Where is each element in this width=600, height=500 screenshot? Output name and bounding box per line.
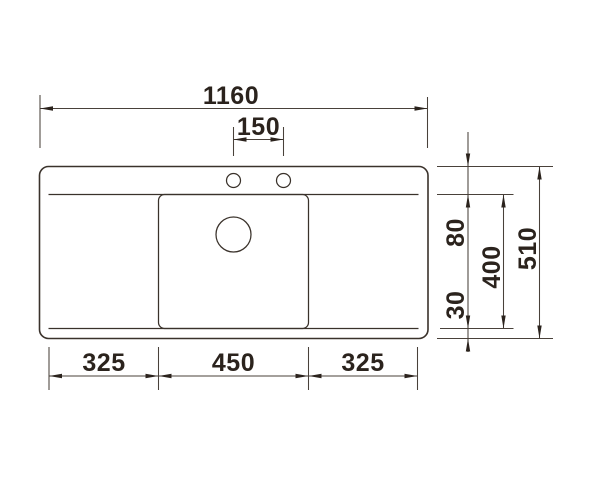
arrowhead-down (466, 154, 470, 167)
sink-bowl (159, 195, 309, 329)
dimension-label: 510 (514, 227, 542, 270)
drain-hole (216, 217, 251, 252)
arrowhead-left (309, 374, 322, 378)
arrowhead-left (159, 374, 172, 378)
tap-hole-left (227, 174, 241, 188)
dimension-bowl-length: 400 (478, 195, 506, 329)
arrowhead-up (466, 195, 470, 208)
arrowhead-down (537, 326, 541, 339)
arrowhead-right (296, 374, 309, 378)
dimension-label: 400 (478, 245, 506, 288)
dimension-label: 30 (442, 291, 470, 320)
arrowhead-right (146, 374, 159, 378)
arrowhead-left (40, 106, 53, 110)
dimension-label: 1160 (203, 82, 259, 110)
dimension-label: 325 (82, 349, 125, 377)
dimension-bottom-widths: 325 450 325 (49, 347, 418, 390)
arrowhead-right (405, 374, 418, 378)
tap-hole-right (277, 174, 291, 188)
arrowhead-down (501, 316, 505, 329)
arrowhead-left (49, 374, 62, 378)
sink-dimension-drawing: 1160 150 325 450 325 (0, 0, 600, 500)
dimension-overall-depth: 510 (514, 167, 542, 339)
arrowhead-up (466, 339, 470, 352)
dimension-label: 150 (237, 113, 280, 141)
arrowhead-up (501, 195, 505, 208)
arrowhead-up (537, 167, 541, 180)
arrowhead-right (415, 106, 428, 110)
dimension-label: 450 (212, 349, 255, 377)
dimension-label: 80 (442, 218, 470, 247)
dimension-tap-spacing: 150 (234, 113, 284, 156)
dimension-label: 325 (341, 349, 384, 377)
sink-outline-group (40, 167, 429, 339)
dimension-rim-offsets: 80 30 (442, 132, 470, 352)
drawing-canvas: 1160 150 325 450 325 (0, 0, 600, 500)
